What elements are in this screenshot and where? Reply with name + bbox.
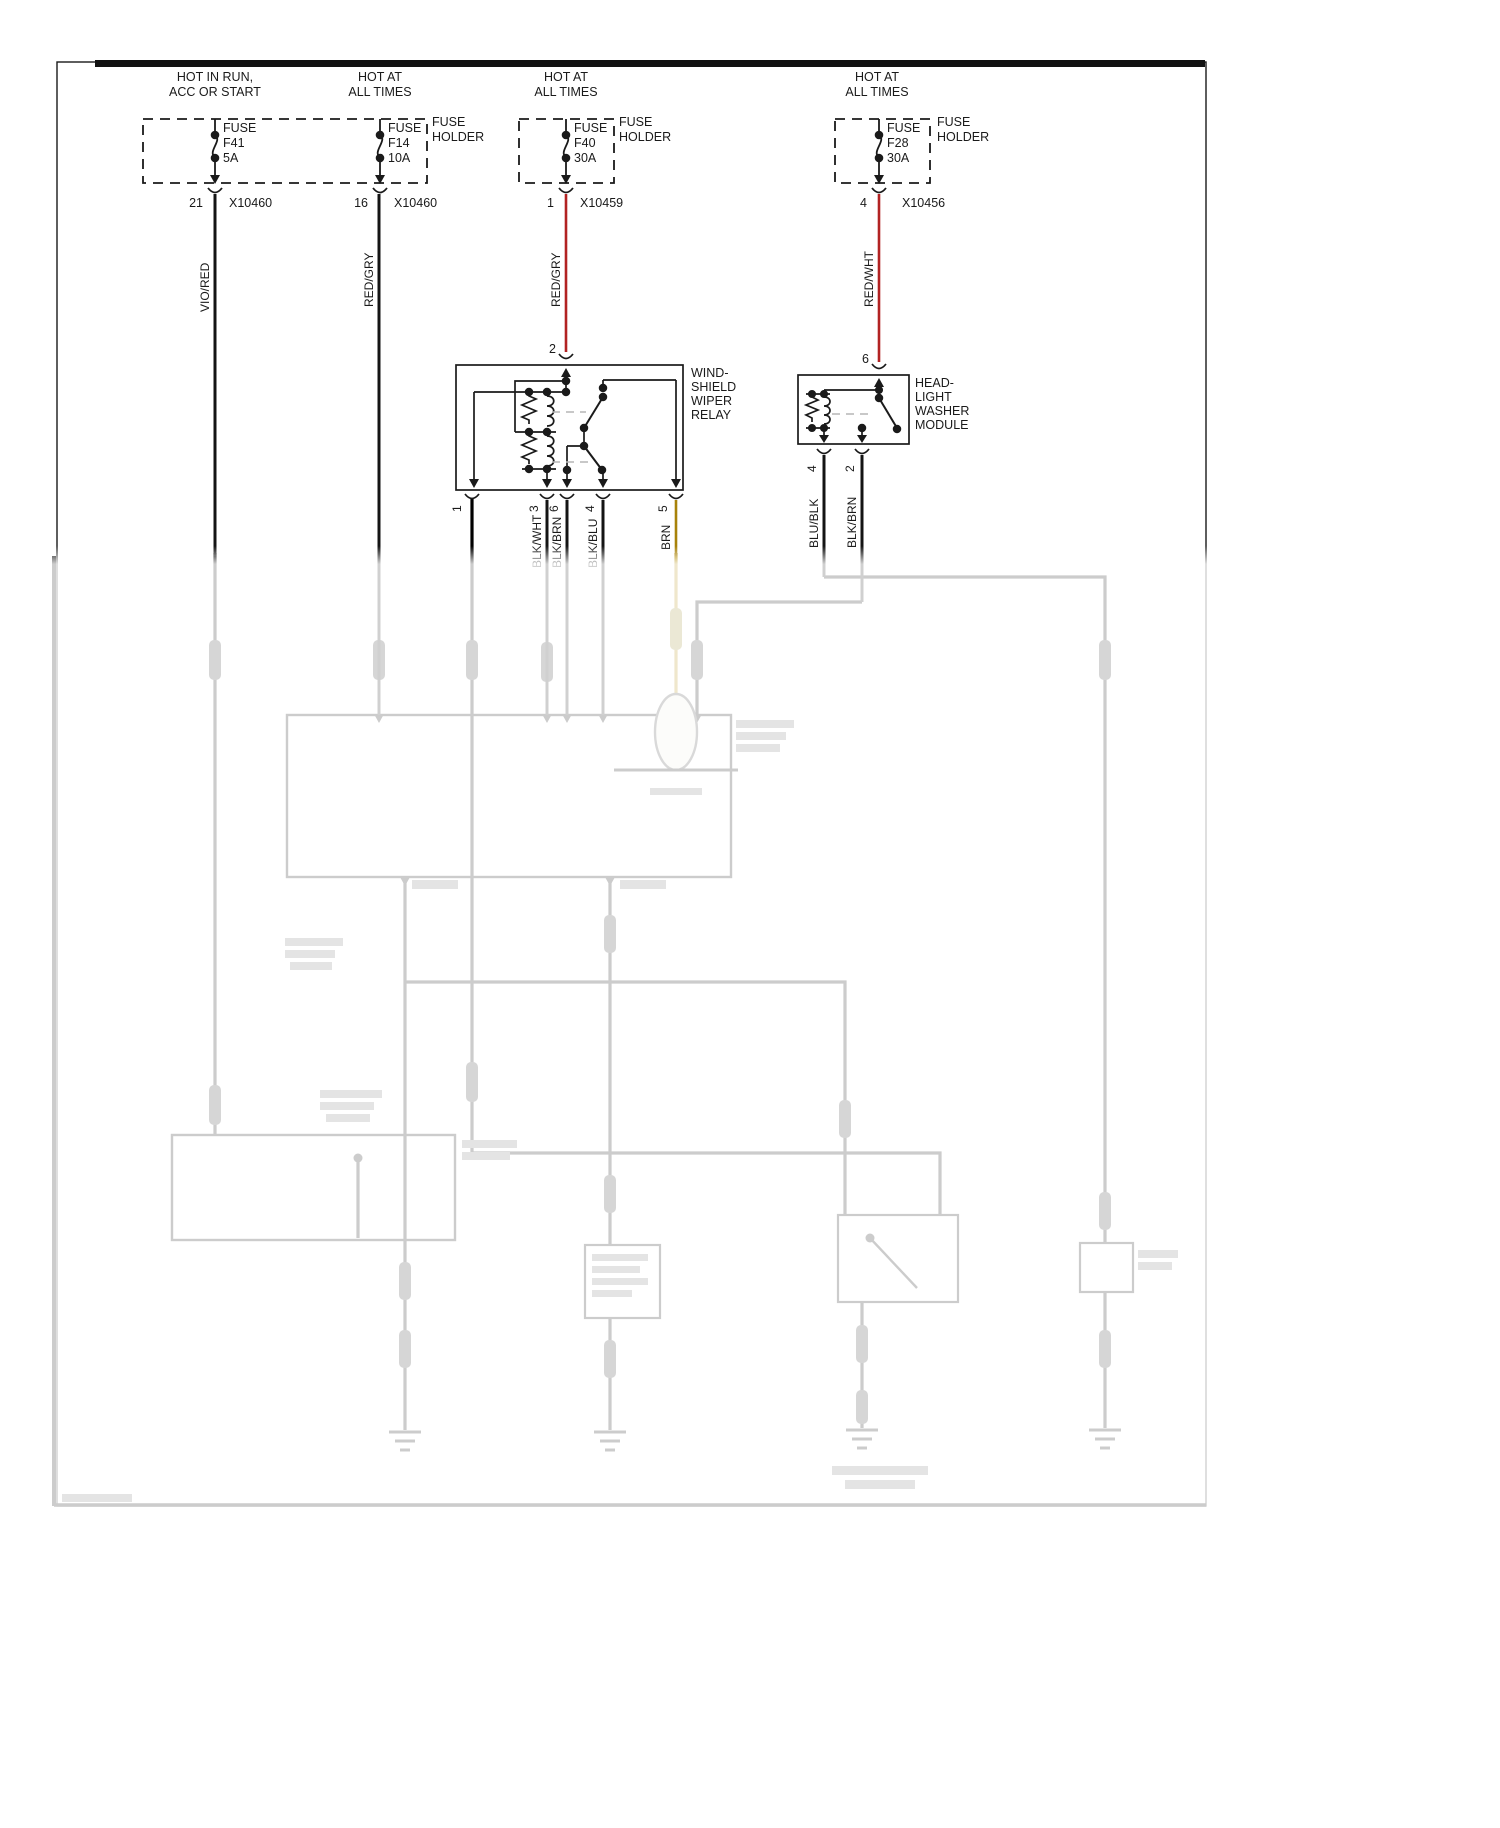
fuse-rating: 10A (388, 151, 411, 165)
feed-header: HOT AT (855, 70, 899, 84)
module-name: LIGHT (915, 390, 952, 404)
module-name: HEAD- (915, 376, 954, 390)
relay-name: WIPER (691, 394, 732, 408)
feed-header: ACC OR START (169, 85, 261, 99)
wire-label: RED/GRY (362, 253, 376, 307)
module-coil-resistor (806, 394, 818, 422)
fuse-id: F14 (388, 136, 410, 150)
relay-pin-number: 6 (547, 505, 561, 512)
wire-label: RED/WHT (862, 250, 876, 307)
feed-header: HOT AT (358, 70, 402, 84)
wire-label: VIO/RED (198, 262, 212, 312)
connector-pin: 21 (189, 196, 203, 210)
fuse-holder-label: HOLDER (937, 130, 989, 144)
wire-label: BLU/BLK (807, 499, 821, 548)
module-coil (824, 397, 830, 424)
fuse-rating: 5A (223, 151, 239, 165)
fuse-holder-label: FUSE (432, 115, 465, 129)
fuse-rating: 30A (574, 151, 597, 165)
feed-header: ALL TIMES (534, 85, 597, 99)
wire-label: RED/GRY (549, 253, 563, 307)
fuse-rating: 30A (887, 151, 910, 165)
connector-name: X10460 (394, 196, 437, 210)
connector-pin: 4 (860, 196, 867, 210)
relay-coil (547, 396, 554, 426)
fuse-holder-box (143, 119, 427, 183)
feed-header: ALL TIMES (845, 85, 908, 99)
relay-pin-number: 4 (583, 505, 597, 512)
module-pin-number: 2 (843, 465, 857, 472)
relay-coil-resistor (522, 392, 536, 424)
connector-name: X10459 (580, 196, 623, 210)
relay-name: SHIELD (691, 380, 736, 394)
relay-pin-number: 5 (656, 505, 670, 512)
connector-name: X10460 (229, 196, 272, 210)
fuse-label: FUSE (388, 121, 421, 135)
connector-pin: 16 (354, 196, 368, 210)
relay-pin-number: 1 (450, 505, 464, 512)
relay-pin-number: 3 (527, 505, 541, 512)
power-feed-section: HOT IN RUN, ACC OR START HOT AT ALL TIME… (143, 70, 989, 210)
relay-name: WIND- (691, 366, 729, 380)
fuse-f14 (375, 119, 385, 184)
fade-overlay (0, 564, 1500, 1828)
fuse-holder-label: HOLDER (432, 130, 484, 144)
relay-name: RELAY (691, 408, 732, 422)
fuse-label: FUSE (223, 121, 256, 135)
top-black-bar (95, 60, 1205, 67)
connector-name: X10456 (902, 196, 945, 210)
fuse-f28 (874, 119, 884, 184)
fuse-id: F41 (223, 136, 245, 150)
feed-header: ALL TIMES (348, 85, 411, 99)
relay-coil-resistor (522, 432, 536, 464)
wire-label: BLK/BRN (845, 497, 859, 548)
wiring-diagram-page: HOT IN RUN, ACC OR START HOT AT ALL TIME… (0, 0, 1500, 1828)
module-top-pin: 6 (862, 352, 869, 366)
fuse-f40 (561, 119, 571, 184)
fuse-holder-label: FUSE (937, 115, 970, 129)
module-name: WASHER (915, 404, 969, 418)
module-name: MODULE (915, 418, 968, 432)
fuse-holder-label: HOLDER (619, 130, 671, 144)
fuse-id: F40 (574, 136, 596, 150)
feed-header: HOT IN RUN, (177, 70, 253, 84)
fuse-holder-label: FUSE (619, 115, 652, 129)
relay-top-pin: 2 (549, 342, 556, 356)
connector-pin: 1 (547, 196, 554, 210)
fuse-f41 (210, 119, 220, 184)
fuse-label: FUSE (574, 121, 607, 135)
module-pin-number: 4 (805, 465, 819, 472)
fuse-id: F28 (887, 136, 909, 150)
fade-transition (0, 546, 1500, 564)
fuse-label: FUSE (887, 121, 920, 135)
feed-header: HOT AT (544, 70, 588, 84)
